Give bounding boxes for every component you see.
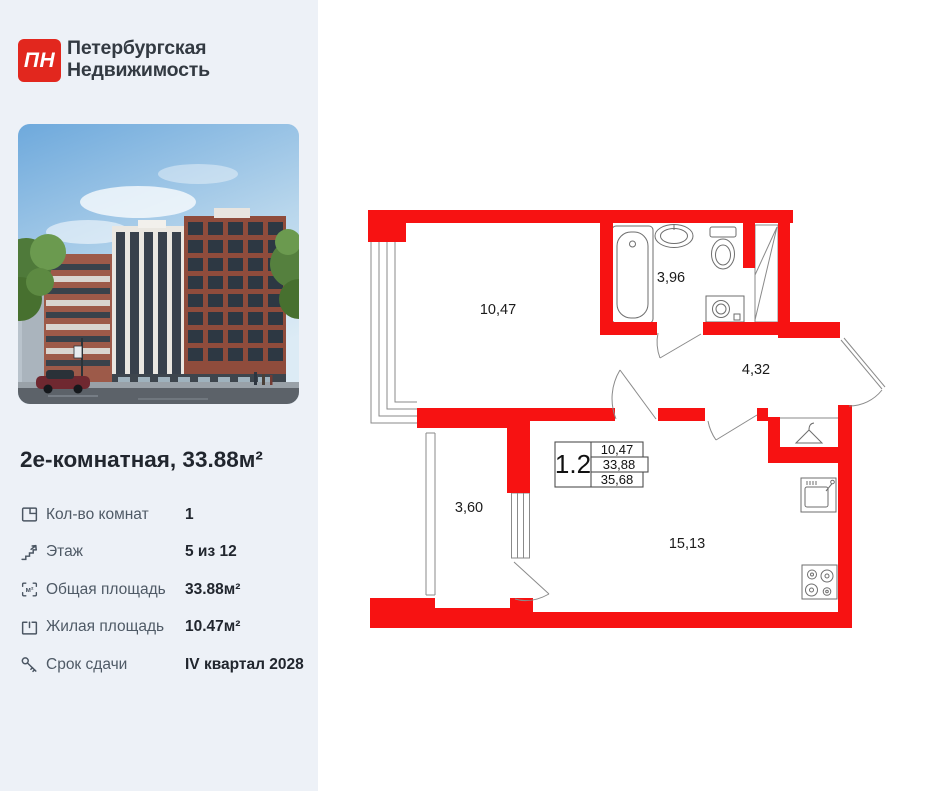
building-render-image (18, 124, 299, 404)
page-title: 2е-комнатная, 33.88м² (20, 447, 263, 473)
walls (368, 210, 852, 628)
legend-unit-number: 1.2 (555, 449, 591, 479)
bathroom-area-label: 3,96 (657, 270, 685, 286)
kitchen-sink-icon (801, 478, 836, 512)
detail-label: Срок сдачи (46, 656, 185, 674)
hallway-area-label: 4,32 (742, 362, 770, 378)
bathtub-icon (612, 226, 653, 323)
building-photo (18, 124, 299, 404)
legend-table: 1.2 10,47 33,88 35,68 (555, 442, 648, 487)
detail-label: Этаж (46, 543, 185, 561)
detail-value: 1 (185, 506, 194, 524)
area-icon-text: м² (26, 585, 34, 594)
living-area-icon (20, 618, 39, 637)
detail-value: 5 из 12 (185, 543, 237, 561)
stove-icon (802, 565, 837, 599)
sink-icon (655, 225, 693, 248)
detail-value: IV квартал 2028 (185, 656, 304, 674)
toilet-icon (710, 227, 736, 269)
entrance-door (841, 338, 885, 406)
detail-label: Общая площадь (46, 581, 185, 599)
legend-total-area: 33,88 (603, 457, 636, 472)
brand-name: Петербургская Недвижимость (67, 38, 210, 81)
detail-row-total-area: м² Общая площадь 33.88м² (20, 571, 306, 609)
brand-logo[interactable]: ПН (18, 39, 61, 82)
detail-row-deadline: Срок сдачи IV квартал 2028 (20, 646, 306, 684)
info-panel: ПН Петербургская Недвижимость (0, 0, 318, 791)
total-area-icon: м² (20, 580, 39, 599)
detail-label: Кол-во комнат (46, 506, 185, 524)
floor-plan: 10,47 3,96 4,32 3,60 15,13 1.2 10,47 33,… (365, 190, 895, 640)
details-list: Кол-во комнат 1 Этаж 5 из 12 (20, 496, 306, 684)
detail-row-floor: Этаж 5 из 12 (20, 534, 306, 572)
detail-value: 33.88м² (185, 581, 240, 599)
detail-row-rooms: Кол-во комнат 1 (20, 496, 306, 534)
washing-machine-icon (706, 296, 744, 322)
listing-page: ПН Петербургская Недвижимость (0, 0, 950, 791)
brand-logo-letters: ПН (24, 49, 55, 73)
floor-icon (20, 543, 39, 562)
balcony-door (514, 562, 549, 601)
bathroom-door (657, 333, 701, 358)
legend-living-area: 10,47 (601, 442, 634, 457)
coat-hanger-icon (796, 423, 822, 443)
kitchen-door (708, 415, 757, 440)
detail-value: 10.47м² (185, 618, 240, 636)
kitchen-area-label: 15,13 (669, 536, 705, 552)
brand-name-line1: Петербургская (67, 38, 210, 60)
detail-row-living-area: Жилая площадь 10.47м² (20, 609, 306, 647)
rooms-icon (20, 505, 39, 524)
room-area-label: 10,47 (480, 302, 516, 318)
fixtures (612, 225, 837, 600)
legend-area-with-balcony: 35,68 (601, 472, 634, 487)
brand-name-line2: Недвижимость (67, 60, 210, 82)
deadline-icon (20, 655, 39, 674)
balcony-area-label: 3,60 (455, 500, 483, 516)
detail-label: Жилая площадь (46, 618, 185, 636)
room-door (612, 370, 656, 419)
